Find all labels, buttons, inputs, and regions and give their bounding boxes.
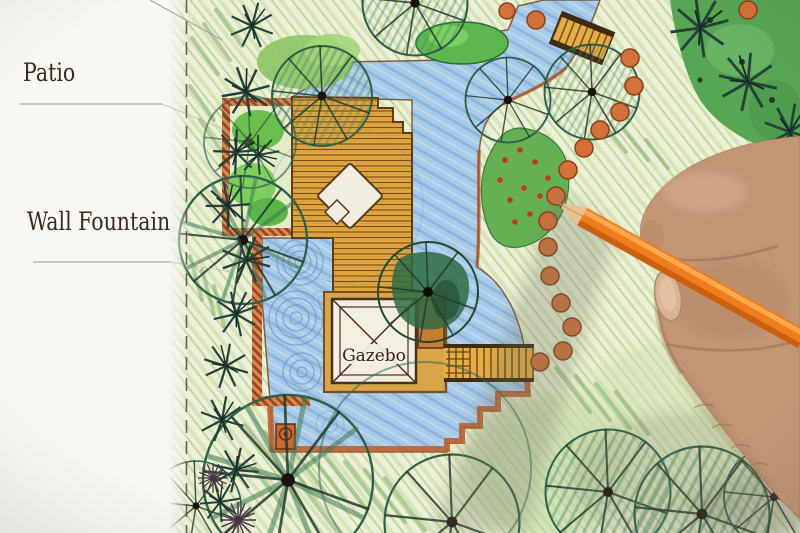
label-patio: Patio [23,58,75,87]
photo-vignette [0,0,800,533]
label-wall-fountain: Wall Fountain [27,207,170,236]
plan-drawing: Gazebo [0,0,800,533]
garden-plan-photo: Gazebo [0,0,800,533]
